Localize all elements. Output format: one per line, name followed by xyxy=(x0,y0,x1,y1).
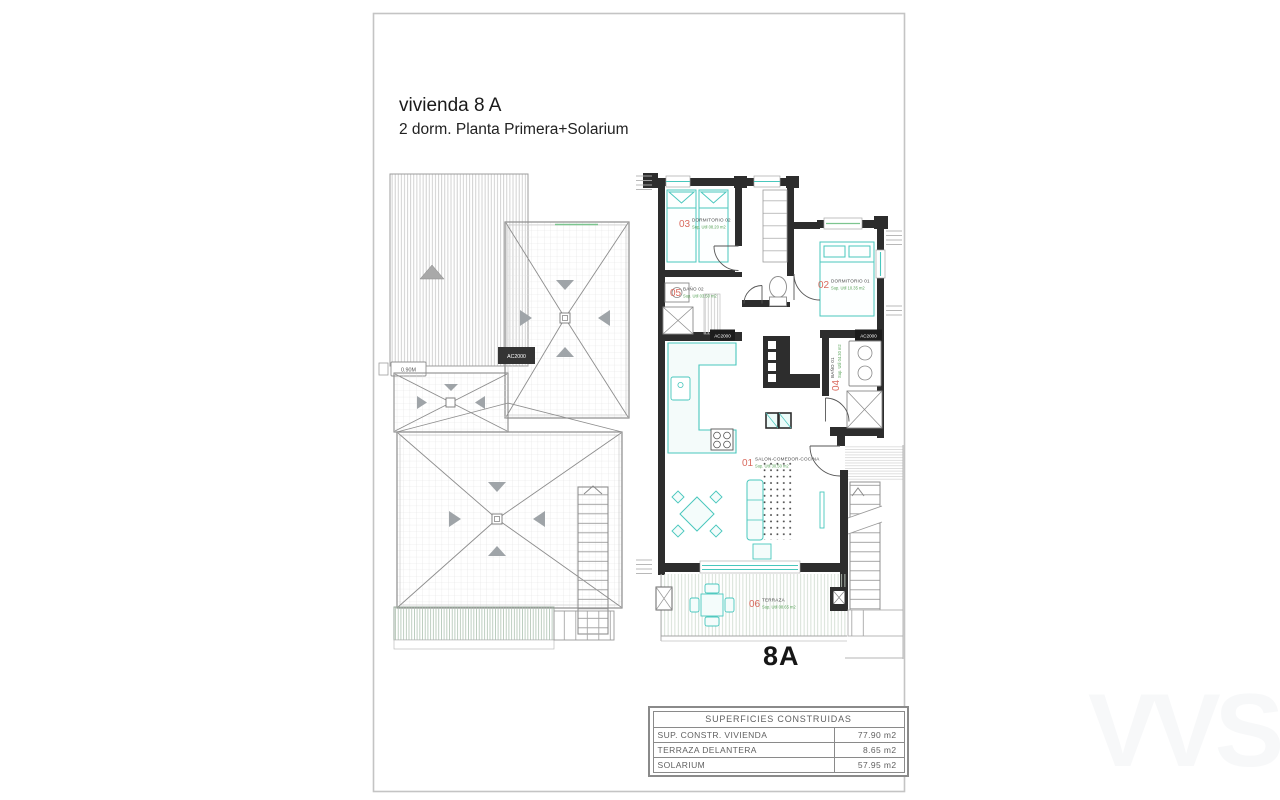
toilet xyxy=(770,277,787,307)
surfaces-table-row: TERRAZA DELANTERA 8.65 m2 xyxy=(653,743,905,758)
svg-text:DORMITORIO 01: DORMITORIO 01 xyxy=(831,279,870,284)
svg-text:BAÑO 02: BAÑO 02 xyxy=(683,286,704,292)
svg-text:AC2000: AC2000 xyxy=(860,334,877,339)
svg-text:06: 06 xyxy=(749,599,761,610)
roof-plan: AC2000 0.90M xyxy=(379,174,629,649)
room-label-bano-02: 05 BAÑO 02 Sup. Util 03.50 m2 xyxy=(670,286,717,300)
roof-drain xyxy=(492,514,502,524)
roof-ac-text: AC2000 xyxy=(507,354,526,360)
ac-unit-label-dorm: AC2000 xyxy=(855,330,882,341)
unit-label: 8A xyxy=(763,641,800,672)
ac-unit-label-hall: AC2000 xyxy=(710,330,735,341)
surface-label: SOLARIUM xyxy=(654,758,834,772)
svg-text:Sup. Util 03.50 m2: Sup. Util 03.50 m2 xyxy=(683,294,717,299)
entry-landing-hatch xyxy=(845,446,903,480)
drawing-subtitle: 2 dorm. Planta Primera+Solarium xyxy=(399,121,629,139)
svg-text:Sup. Util 04.30 m2: Sup. Util 04.30 m2 xyxy=(837,344,842,378)
room-label-salon: 01 SALON-COMEDOR-COCINA Sup. Util 30.50 … xyxy=(742,457,820,470)
watermark: VVS xyxy=(1088,672,1280,800)
surfaces-table-row: SUP. CONSTR. VIVIENDA 77.90 m2 xyxy=(653,728,905,743)
front-pergola-strip xyxy=(394,607,554,649)
rug xyxy=(763,462,794,540)
svg-text:BAÑO 01: BAÑO 01 xyxy=(829,357,835,378)
bathroom-1-fixtures xyxy=(847,341,882,428)
roof-ac-unit-label: AC2000 xyxy=(498,347,535,364)
svg-text:05: 05 xyxy=(670,288,682,299)
svg-text:02: 02 xyxy=(818,280,830,291)
drawing-title: vivienda 8 A xyxy=(399,95,629,117)
solarium-tile-area-1 xyxy=(505,222,629,418)
surfaces-table-header: SUPERFICIES CONSTRUIDAS xyxy=(653,711,905,728)
surface-label: SUP. CONSTR. VIVIENDA xyxy=(654,728,834,742)
svg-text:04: 04 xyxy=(831,379,842,391)
kitchen xyxy=(668,343,736,453)
svg-text:Sup. Util 10.35 m2: Sup. Util 10.35 m2 xyxy=(831,286,865,291)
svg-text:Sup. Util 08.65 m2: Sup. Util 08.65 m2 xyxy=(762,605,796,610)
svg-text:Sup. Util 08.20 m2: Sup. Util 08.20 m2 xyxy=(692,225,726,230)
floorplan-sheet: AC2000 0.90M xyxy=(0,0,1280,800)
surface-label: TERRAZA DELANTERA xyxy=(654,743,834,757)
surfaces-table: SUPERFICIES CONSTRUIDAS SUP. CONSTR. VIV… xyxy=(648,706,909,777)
surface-value: 57.95 m2 xyxy=(834,758,904,772)
svg-text:01: 01 xyxy=(742,458,754,469)
room-label-bano-01: 04 BAÑO 01 Sup. Util 04.30 m2 xyxy=(829,344,842,391)
lower-stair xyxy=(554,611,614,640)
roof-drain xyxy=(446,398,455,407)
roof-drain xyxy=(560,313,570,323)
side-table xyxy=(753,544,771,559)
svg-text:SALON-COMEDOR-COCINA: SALON-COMEDOR-COCINA xyxy=(755,457,820,462)
sofa xyxy=(747,480,763,540)
drawing-title-block: vivienda 8 A 2 dorm. Planta Primera+Sola… xyxy=(399,95,629,139)
room-label-dormitorio-02: 03 DORMITORIO 02 Sup. Util 08.20 m2 xyxy=(679,218,731,231)
solarium-tile-area-2 xyxy=(394,373,508,432)
hall-closet xyxy=(763,190,787,262)
living-room-furniture xyxy=(672,462,824,559)
surface-value: 8.65 m2 xyxy=(834,743,904,757)
exterior-stairs xyxy=(848,482,903,636)
room-label-dormitorio-01: 02 DORMITORIO 01 Sup. Util 10.35 m2 xyxy=(818,279,870,292)
dining-table xyxy=(680,497,714,531)
svg-text:TERRAZA: TERRAZA xyxy=(762,598,786,603)
svg-text:AC2000: AC2000 xyxy=(714,334,731,339)
radiator xyxy=(820,492,824,528)
svg-text:03: 03 xyxy=(679,219,691,230)
kitchen-sink xyxy=(671,377,690,400)
surface-value: 77.90 m2 xyxy=(834,728,904,742)
floor-plan: AC2000 AC2000 xyxy=(636,173,903,659)
surfaces-table-row: SOLARIUM 57.95 m2 xyxy=(653,758,905,773)
svg-text:DORMITORIO 02: DORMITORIO 02 xyxy=(692,218,731,223)
svg-text:Sup. Util 30.50 m2: Sup. Util 30.50 m2 xyxy=(755,464,789,469)
